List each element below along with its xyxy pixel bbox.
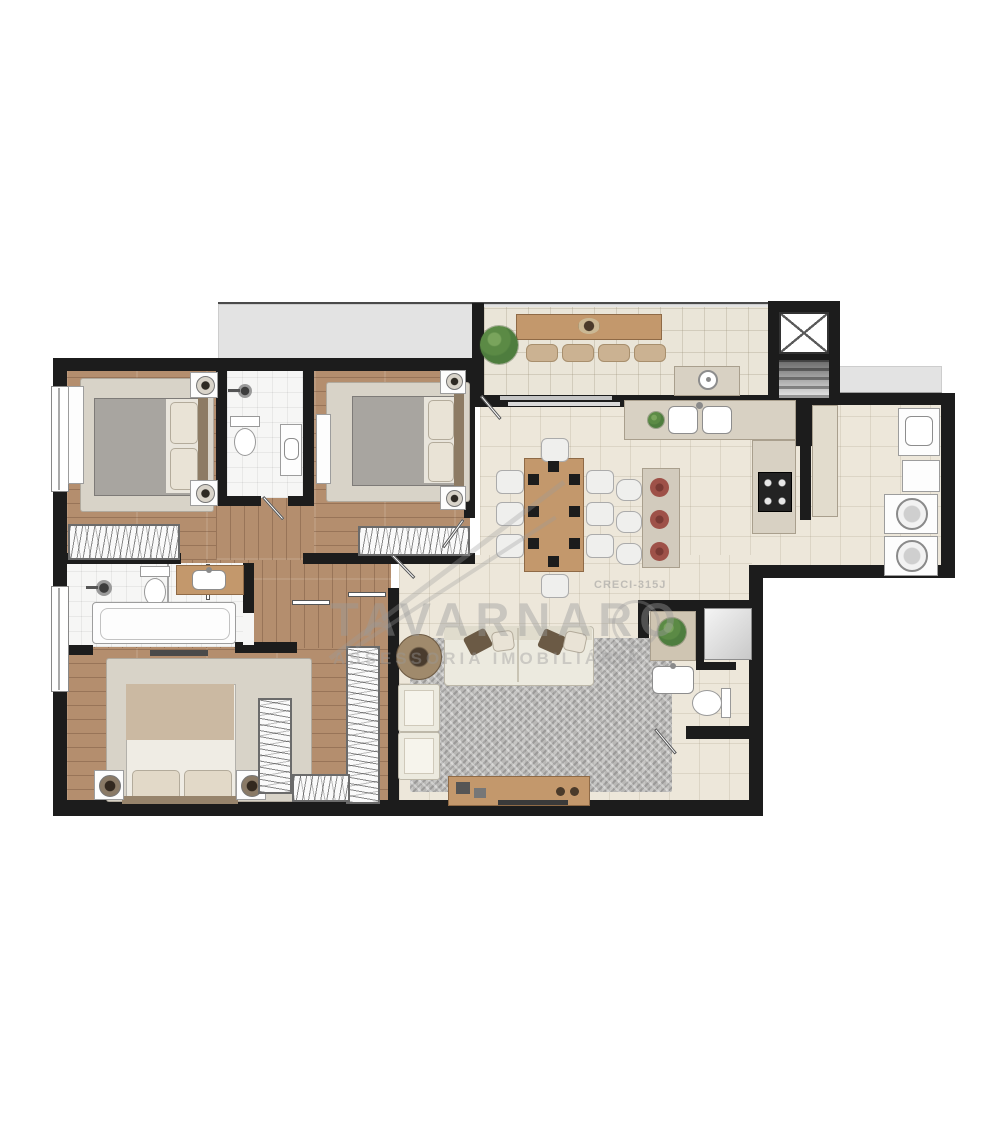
wall bbox=[216, 496, 261, 506]
master-bed-blanket bbox=[126, 684, 234, 740]
master-suite-door bbox=[348, 592, 386, 597]
bar-stool bbox=[598, 344, 630, 362]
kitchen-sink bbox=[668, 406, 698, 434]
dining-chair bbox=[586, 502, 614, 526]
island-stool bbox=[616, 479, 642, 501]
wall bbox=[288, 496, 314, 506]
island-placemat bbox=[650, 510, 669, 529]
dining-chair bbox=[586, 470, 614, 494]
throw-pillow bbox=[491, 630, 516, 653]
wall-tv-icon bbox=[150, 650, 208, 656]
toilet-bowl bbox=[234, 428, 256, 456]
dining-chair bbox=[586, 534, 614, 558]
balcony-sliding-door bbox=[500, 396, 612, 400]
bedroom1-dresser bbox=[68, 386, 84, 484]
balcony-decor bbox=[578, 318, 600, 334]
washing-machine-drum bbox=[896, 498, 928, 530]
pillow bbox=[170, 402, 198, 444]
bathroom1-sink bbox=[284, 438, 299, 460]
shower-head-icon bbox=[238, 384, 252, 398]
placemat bbox=[548, 556, 559, 567]
kitchen-sink bbox=[702, 406, 732, 434]
placemat bbox=[528, 474, 539, 485]
laundry-tub-basin bbox=[905, 416, 933, 446]
island-placemat bbox=[650, 542, 669, 561]
dining-chair bbox=[496, 470, 524, 494]
placemat bbox=[569, 474, 580, 485]
stairs-icon bbox=[779, 360, 829, 398]
faucet-icon bbox=[206, 567, 212, 573]
placemat bbox=[528, 538, 539, 549]
throw-pillow bbox=[562, 630, 588, 654]
wall bbox=[941, 393, 955, 578]
lamp-icon bbox=[446, 490, 463, 507]
wall bbox=[53, 358, 480, 371]
bar-stool bbox=[634, 344, 666, 362]
wall bbox=[686, 726, 755, 739]
placemat bbox=[548, 461, 559, 472]
closet-wardrobe-bottom bbox=[292, 774, 350, 802]
bedroom1-window-pane bbox=[58, 388, 60, 490]
lamp-icon bbox=[196, 484, 215, 503]
faucet-icon bbox=[706, 377, 711, 382]
tv-rack-item bbox=[474, 788, 486, 798]
island-stool bbox=[616, 511, 642, 533]
shower-arm bbox=[86, 586, 98, 589]
elevator-icon bbox=[779, 312, 829, 354]
master-vanity-sink bbox=[192, 570, 226, 590]
tv-rack-knob bbox=[570, 787, 579, 796]
master-bathtub-inner bbox=[100, 608, 230, 640]
toilet-tank bbox=[721, 688, 731, 718]
hall-floor-upper bbox=[216, 498, 314, 560]
tv-soundbar bbox=[498, 800, 568, 805]
service-cabinet-strip bbox=[812, 405, 838, 517]
armchair-cushion bbox=[404, 690, 434, 726]
closet-wardrobe-right bbox=[346, 646, 380, 804]
lavabo-shower-box bbox=[704, 608, 752, 660]
placemat bbox=[569, 538, 580, 549]
master-headboard bbox=[122, 796, 238, 804]
shower-arm bbox=[228, 389, 240, 392]
placemat bbox=[528, 506, 539, 517]
master-window-pane bbox=[58, 588, 60, 690]
toilet-icon bbox=[692, 690, 722, 716]
faucet-icon bbox=[670, 663, 676, 669]
bedroom1-window bbox=[51, 386, 69, 492]
dryer-drum bbox=[896, 540, 928, 572]
bar-stool bbox=[562, 344, 594, 362]
plant-icon bbox=[658, 618, 686, 646]
dining-chair bbox=[541, 438, 569, 462]
floor-plan: TAVARNARO ASSESSORIA IMOBILIÁRIA CRECI-3… bbox=[0, 0, 1000, 1126]
bar-stool bbox=[526, 344, 558, 362]
toilet-icon bbox=[140, 566, 170, 577]
balcony-sliding-door bbox=[508, 402, 620, 406]
wall bbox=[696, 662, 736, 670]
sofa-seat-split bbox=[517, 628, 519, 682]
cooktop-icon bbox=[758, 472, 792, 512]
shower-head-icon bbox=[96, 580, 112, 596]
lavabo-sink bbox=[652, 666, 694, 694]
closet-wardrobe-left bbox=[258, 698, 292, 794]
master-bath-door-gap bbox=[243, 613, 254, 645]
island-stool bbox=[616, 543, 642, 565]
placemat bbox=[569, 506, 580, 517]
pillow bbox=[428, 442, 454, 482]
common-hall-area bbox=[218, 304, 474, 364]
toilet-icon bbox=[230, 416, 260, 427]
wall bbox=[800, 440, 811, 520]
wall bbox=[243, 563, 254, 615]
wall bbox=[696, 600, 704, 670]
dining-chair bbox=[541, 574, 569, 598]
dining-chair bbox=[496, 534, 524, 558]
master-window bbox=[51, 586, 69, 692]
pillow bbox=[428, 400, 454, 440]
lamp-icon bbox=[99, 775, 121, 797]
service-cabinet bbox=[902, 460, 940, 492]
plant-icon bbox=[480, 326, 518, 364]
tv-rack-knob bbox=[556, 787, 565, 796]
faucet-icon bbox=[696, 402, 703, 409]
round-side-table bbox=[396, 634, 442, 680]
dining-chair bbox=[496, 502, 524, 526]
plant-icon bbox=[648, 412, 664, 428]
wall bbox=[303, 358, 314, 506]
armchair-cushion bbox=[404, 738, 434, 774]
lamp-icon bbox=[196, 376, 215, 395]
bedroom1-wardrobe bbox=[68, 524, 180, 560]
tv-rack-item bbox=[456, 782, 470, 794]
master-bath-door bbox=[292, 600, 330, 605]
bedroom2-dresser bbox=[316, 414, 331, 484]
island-placemat bbox=[650, 478, 669, 497]
bedroom2-headboard bbox=[454, 394, 464, 486]
lamp-icon bbox=[446, 373, 463, 390]
